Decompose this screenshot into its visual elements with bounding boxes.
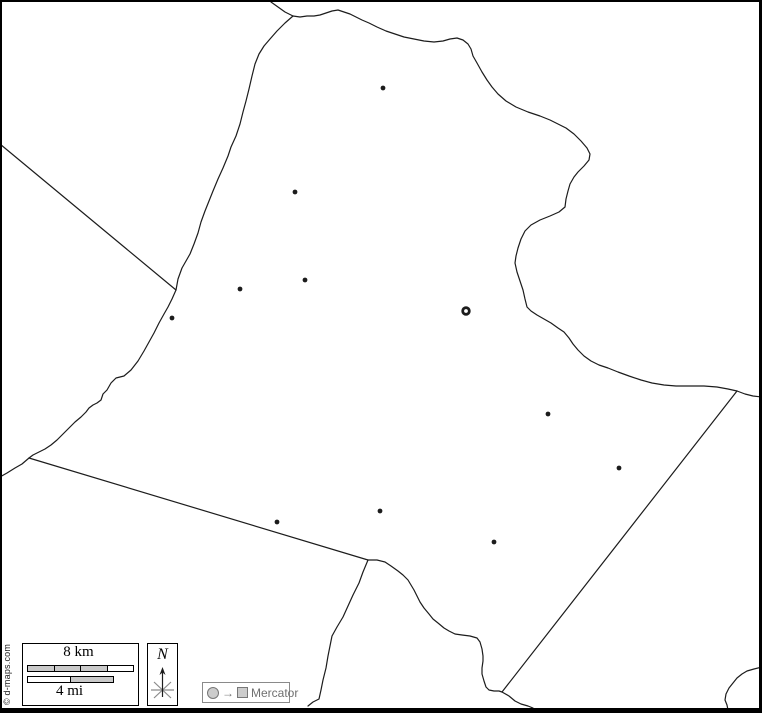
map-outline-svg — [0, 0, 762, 713]
boundary-bottom-right-squiggle — [725, 667, 762, 710]
town-dot — [617, 466, 622, 471]
boundary-se-straight — [502, 391, 737, 692]
boundary-top-entry — [271, 2, 293, 16]
scale-km-segment — [107, 666, 134, 671]
town-dot — [378, 509, 383, 514]
town-dot — [492, 540, 497, 545]
boundary-north-east — [293, 10, 737, 391]
scale-mi-bar — [27, 676, 114, 683]
boundary-east-exit — [737, 391, 762, 397]
boundary-lines — [0, 2, 762, 710]
scale-box: 8 km 4 mi — [22, 643, 139, 706]
compass-north-label: N — [148, 646, 177, 664]
boundary-nw-neighbor-line — [0, 144, 176, 290]
boundary-west-river — [29, 16, 293, 458]
scale-km-bar — [27, 665, 134, 672]
compass-rose-icon — [149, 664, 176, 704]
boundary-west-exit — [0, 458, 29, 477]
projection-label: Mercator — [251, 686, 298, 700]
town-dot — [238, 287, 243, 292]
attribution: © d-maps.com — [2, 644, 12, 705]
town-dot — [170, 316, 175, 321]
scale-mi-label: 4 mi — [27, 683, 112, 700]
scale-km-segment — [28, 666, 54, 671]
town-dots — [170, 86, 622, 545]
scale-km-segment — [54, 666, 81, 671]
town-dot — [303, 278, 308, 283]
boundary-sw-straight — [29, 458, 368, 560]
boundary-south-neighbor — [308, 560, 368, 706]
scale-km-segment — [80, 666, 107, 671]
compass-box: N — [147, 643, 178, 706]
scale-mi-segment — [70, 677, 113, 682]
projection-legend: → Mercator — [202, 682, 290, 703]
town-dot — [546, 412, 551, 417]
scale-mi-segment — [28, 677, 70, 682]
town-dot — [275, 520, 280, 525]
square-symbol-icon — [237, 687, 248, 698]
scale-km-label: 8 km — [25, 644, 132, 661]
town-dot — [293, 190, 298, 195]
town-dot — [381, 86, 386, 91]
map-canvas: © d-maps.com 8 km 4 mi N → Mercator — [0, 0, 762, 713]
circle-symbol-icon — [207, 687, 219, 699]
county-seat-marker — [463, 308, 470, 315]
arrow-right-icon: → — [222, 687, 234, 699]
boundary-south-wiggle — [368, 560, 533, 708]
